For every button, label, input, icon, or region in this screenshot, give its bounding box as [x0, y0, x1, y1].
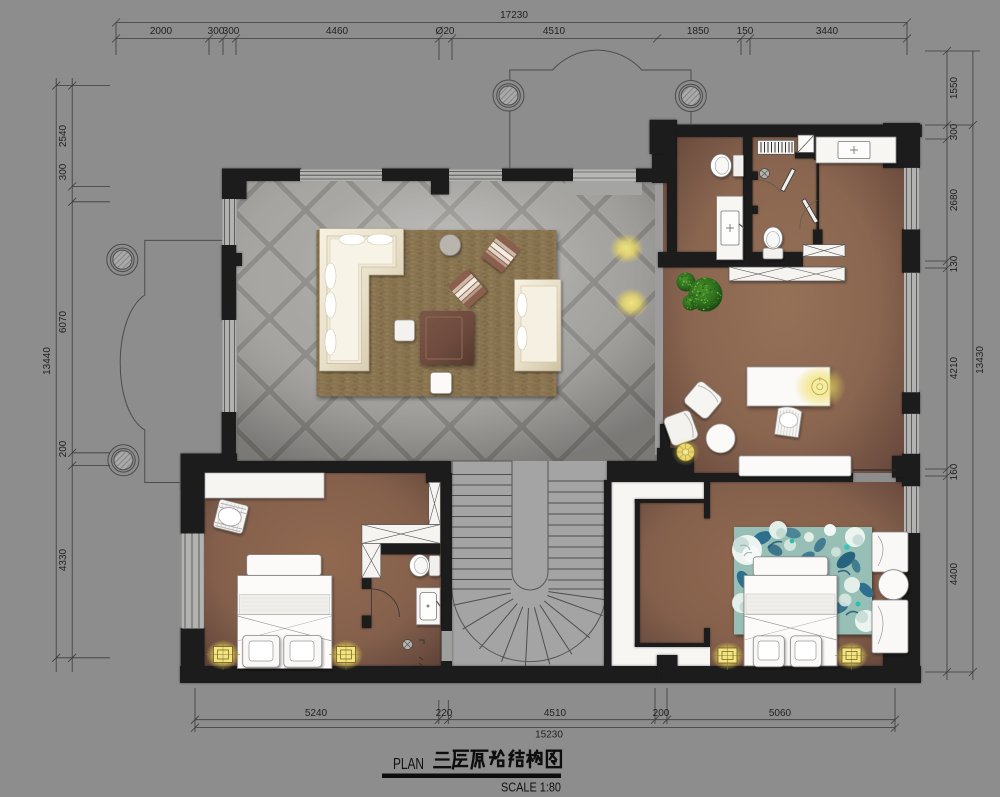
svg-text:3440: 3440 — [816, 26, 839, 37]
svg-text:200: 200 — [653, 708, 670, 719]
svg-text:300: 300 — [223, 26, 240, 37]
svg-text:SCALE 1:80: SCALE 1:80 — [501, 780, 561, 795]
svg-text:1850: 1850 — [687, 26, 710, 37]
svg-text:300: 300 — [949, 123, 960, 140]
svg-text:Ø20: Ø20 — [436, 26, 455, 37]
svg-text:4330: 4330 — [58, 548, 69, 571]
svg-text:5060: 5060 — [769, 708, 792, 719]
svg-text:200: 200 — [58, 440, 69, 457]
svg-text:300: 300 — [58, 163, 69, 180]
svg-text:15230: 15230 — [535, 730, 563, 741]
svg-text:5240: 5240 — [305, 708, 328, 719]
svg-text:13430: 13430 — [975, 346, 986, 374]
svg-text:2000: 2000 — [150, 26, 173, 37]
svg-text:4510: 4510 — [544, 708, 567, 719]
svg-text:6070: 6070 — [58, 310, 69, 333]
svg-text:160: 160 — [949, 463, 960, 480]
svg-text:13440: 13440 — [42, 347, 53, 375]
svg-text:17230: 17230 — [500, 10, 528, 21]
svg-text:2540: 2540 — [58, 124, 69, 147]
svg-text:220: 220 — [436, 708, 453, 719]
svg-text:2680: 2680 — [949, 188, 960, 211]
svg-text:4460: 4460 — [326, 26, 349, 37]
svg-text:4400: 4400 — [949, 562, 960, 585]
svg-text:PLAN: PLAN — [393, 756, 424, 773]
svg-text:130: 130 — [949, 255, 960, 272]
svg-text:150: 150 — [737, 26, 754, 37]
svg-text:1550: 1550 — [949, 76, 960, 99]
svg-text:4510: 4510 — [543, 26, 566, 37]
svg-text:4210: 4210 — [949, 356, 960, 379]
